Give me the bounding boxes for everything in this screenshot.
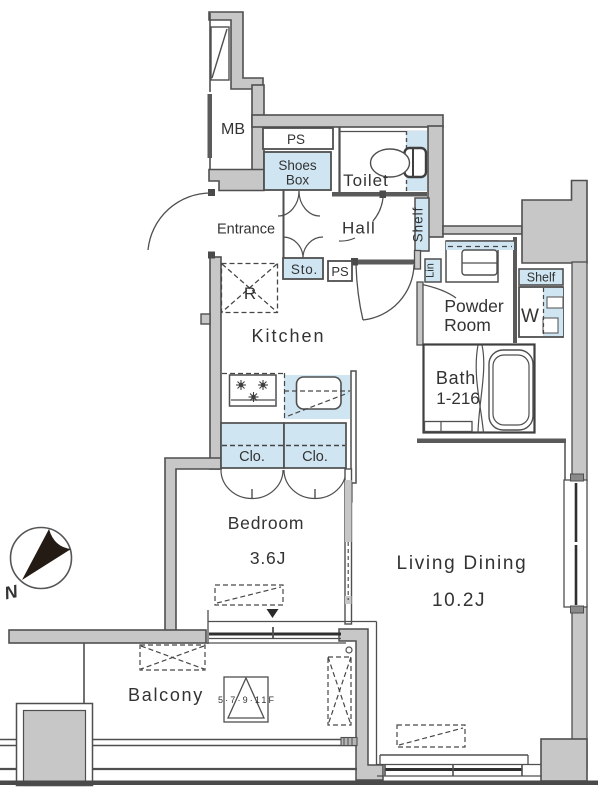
- svg-text:Shoes: Shoes: [278, 158, 317, 173]
- svg-text:Shelf: Shelf: [527, 271, 556, 285]
- svg-text:10.2J: 10.2J: [432, 590, 486, 611]
- svg-text:PS: PS: [287, 132, 305, 147]
- svg-text:5·7·9·11F: 5·7·9·11F: [218, 695, 275, 705]
- svg-text:Room: Room: [444, 315, 491, 335]
- svg-text:3.6J: 3.6J: [250, 548, 286, 568]
- svg-text:Living Dining: Living Dining: [397, 553, 528, 574]
- svg-text:MB: MB: [221, 121, 245, 138]
- svg-text:Box: Box: [286, 173, 310, 188]
- svg-text:R: R: [244, 284, 256, 303]
- svg-text:W: W: [521, 306, 539, 327]
- svg-text:Clo.: Clo.: [302, 449, 328, 465]
- svg-text:Shelf: Shelf: [411, 207, 426, 243]
- svg-text:Powder: Powder: [444, 296, 504, 316]
- svg-text:Toilet: Toilet: [343, 171, 389, 190]
- svg-text:PS: PS: [331, 264, 349, 279]
- svg-text:Entrance: Entrance: [217, 222, 275, 238]
- svg-text:Bath: Bath: [436, 368, 476, 388]
- svg-text:Bedroom: Bedroom: [228, 513, 305, 533]
- svg-text:Lin: Lin: [425, 263, 437, 278]
- svg-text:Hall: Hall: [342, 219, 376, 238]
- svg-text:1-216: 1-216: [436, 389, 479, 408]
- svg-text:Balcony: Balcony: [128, 685, 204, 705]
- svg-text:Sto.: Sto.: [291, 262, 318, 277]
- svg-text:Kitchen: Kitchen: [251, 326, 325, 346]
- svg-text:Clo.: Clo.: [239, 449, 265, 465]
